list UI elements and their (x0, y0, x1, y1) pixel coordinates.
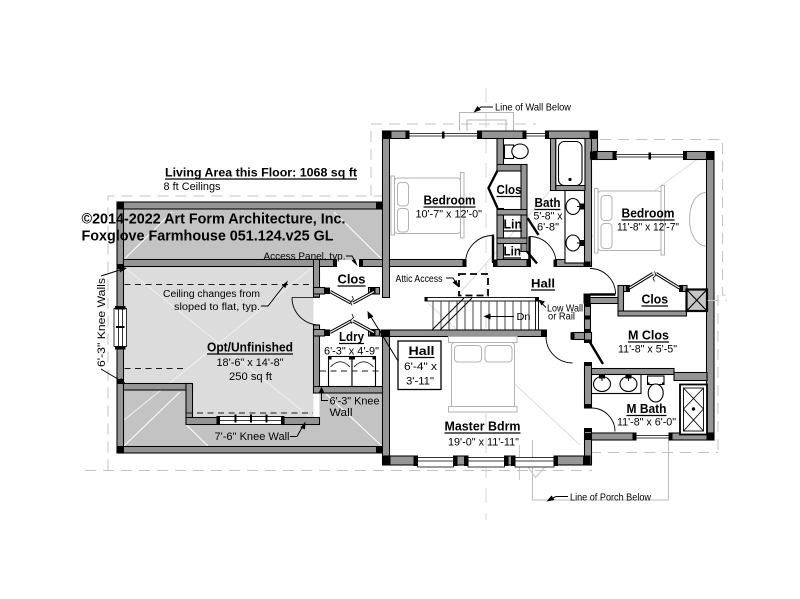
svg-text:Line of Wall Below: Line of Wall Below (495, 103, 572, 114)
svg-text:Bedroom: Bedroom (424, 194, 476, 208)
svg-text:Opt/Unfinished: Opt/Unfinished (207, 341, 293, 355)
svg-text:18'-6" x 14'-8": 18'-6" x 14'-8" (217, 357, 284, 369)
svg-text:Ceiling changes from: Ceiling changes from (163, 289, 260, 300)
svg-text:M Bath: M Bath (627, 402, 667, 416)
svg-text:6'-4" x: 6'-4" x (404, 361, 438, 373)
svg-text:11'-8" x 12'-7": 11'-8" x 12'-7" (617, 222, 679, 234)
svg-text:Hall: Hall (409, 344, 435, 358)
svg-text:Bath: Bath (535, 196, 561, 210)
svg-text:Clos: Clos (642, 293, 669, 307)
svg-text:Ldry: Ldry (339, 330, 364, 344)
svg-text:Hall: Hall (531, 277, 555, 291)
svg-text:M Clos: M Clos (628, 329, 669, 343)
svg-text:Living Area this Floor: 1068 s: Living Area this Floor: 1068 sq ft (165, 166, 357, 180)
svg-text:or Rail: or Rail (548, 312, 575, 323)
svg-text:6'-3" Knee Walls: 6'-3" Knee Walls (96, 277, 108, 367)
svg-text:6'-8": 6'-8" (537, 222, 559, 234)
svg-text:250 sq ft: 250 sq ft (229, 371, 272, 383)
svg-text:Lin: Lin (504, 218, 523, 232)
svg-text:Attic Access: Attic Access (396, 274, 443, 285)
svg-text:Lin: Lin (504, 245, 522, 259)
svg-text:6'-3" x 4'-9": 6'-3" x 4'-9" (324, 346, 379, 358)
svg-text:Wall: Wall (330, 407, 353, 419)
svg-text:Master Bdrm: Master Bdrm (445, 420, 521, 434)
svg-text:sloped to flat, typ.: sloped to flat, typ. (174, 302, 260, 313)
svg-text:10'-7" x 12'-0": 10'-7" x 12'-0" (416, 209, 483, 221)
svg-text:3'-11": 3'-11" (406, 376, 434, 388)
svg-text:Clos: Clos (497, 183, 522, 197)
svg-text:Foxglove Farmhouse 051.124.v25: Foxglove Farmhouse 051.124.v25 GL (82, 229, 334, 245)
svg-text:11'-8" x 6'-0": 11'-8" x 6'-0" (617, 417, 676, 429)
svg-text:Bedroom: Bedroom (622, 207, 675, 221)
svg-text:11'-8" x 5'-5": 11'-8" x 5'-5" (618, 344, 677, 356)
svg-text:Clos: Clos (338, 273, 366, 287)
svg-text:8 ft Ceilings: 8 ft Ceilings (164, 181, 221, 193)
svg-text:©2014-2022 Art Form Architectu: ©2014-2022 Art Form Architecture, Inc. (82, 212, 346, 228)
svg-text:7'-6" Knee Wall: 7'-6" Knee Wall (215, 431, 290, 443)
svg-text:Access Panel, typ.: Access Panel, typ. (264, 252, 346, 263)
svg-text:Line of Porch Below: Line of Porch Below (570, 493, 652, 504)
svg-text:19'-0" x 11'-11": 19'-0" x 11'-11" (448, 437, 519, 449)
svg-text:Dn: Dn (517, 312, 531, 323)
svg-text:6'-3" Knee: 6'-3" Knee (330, 396, 380, 408)
